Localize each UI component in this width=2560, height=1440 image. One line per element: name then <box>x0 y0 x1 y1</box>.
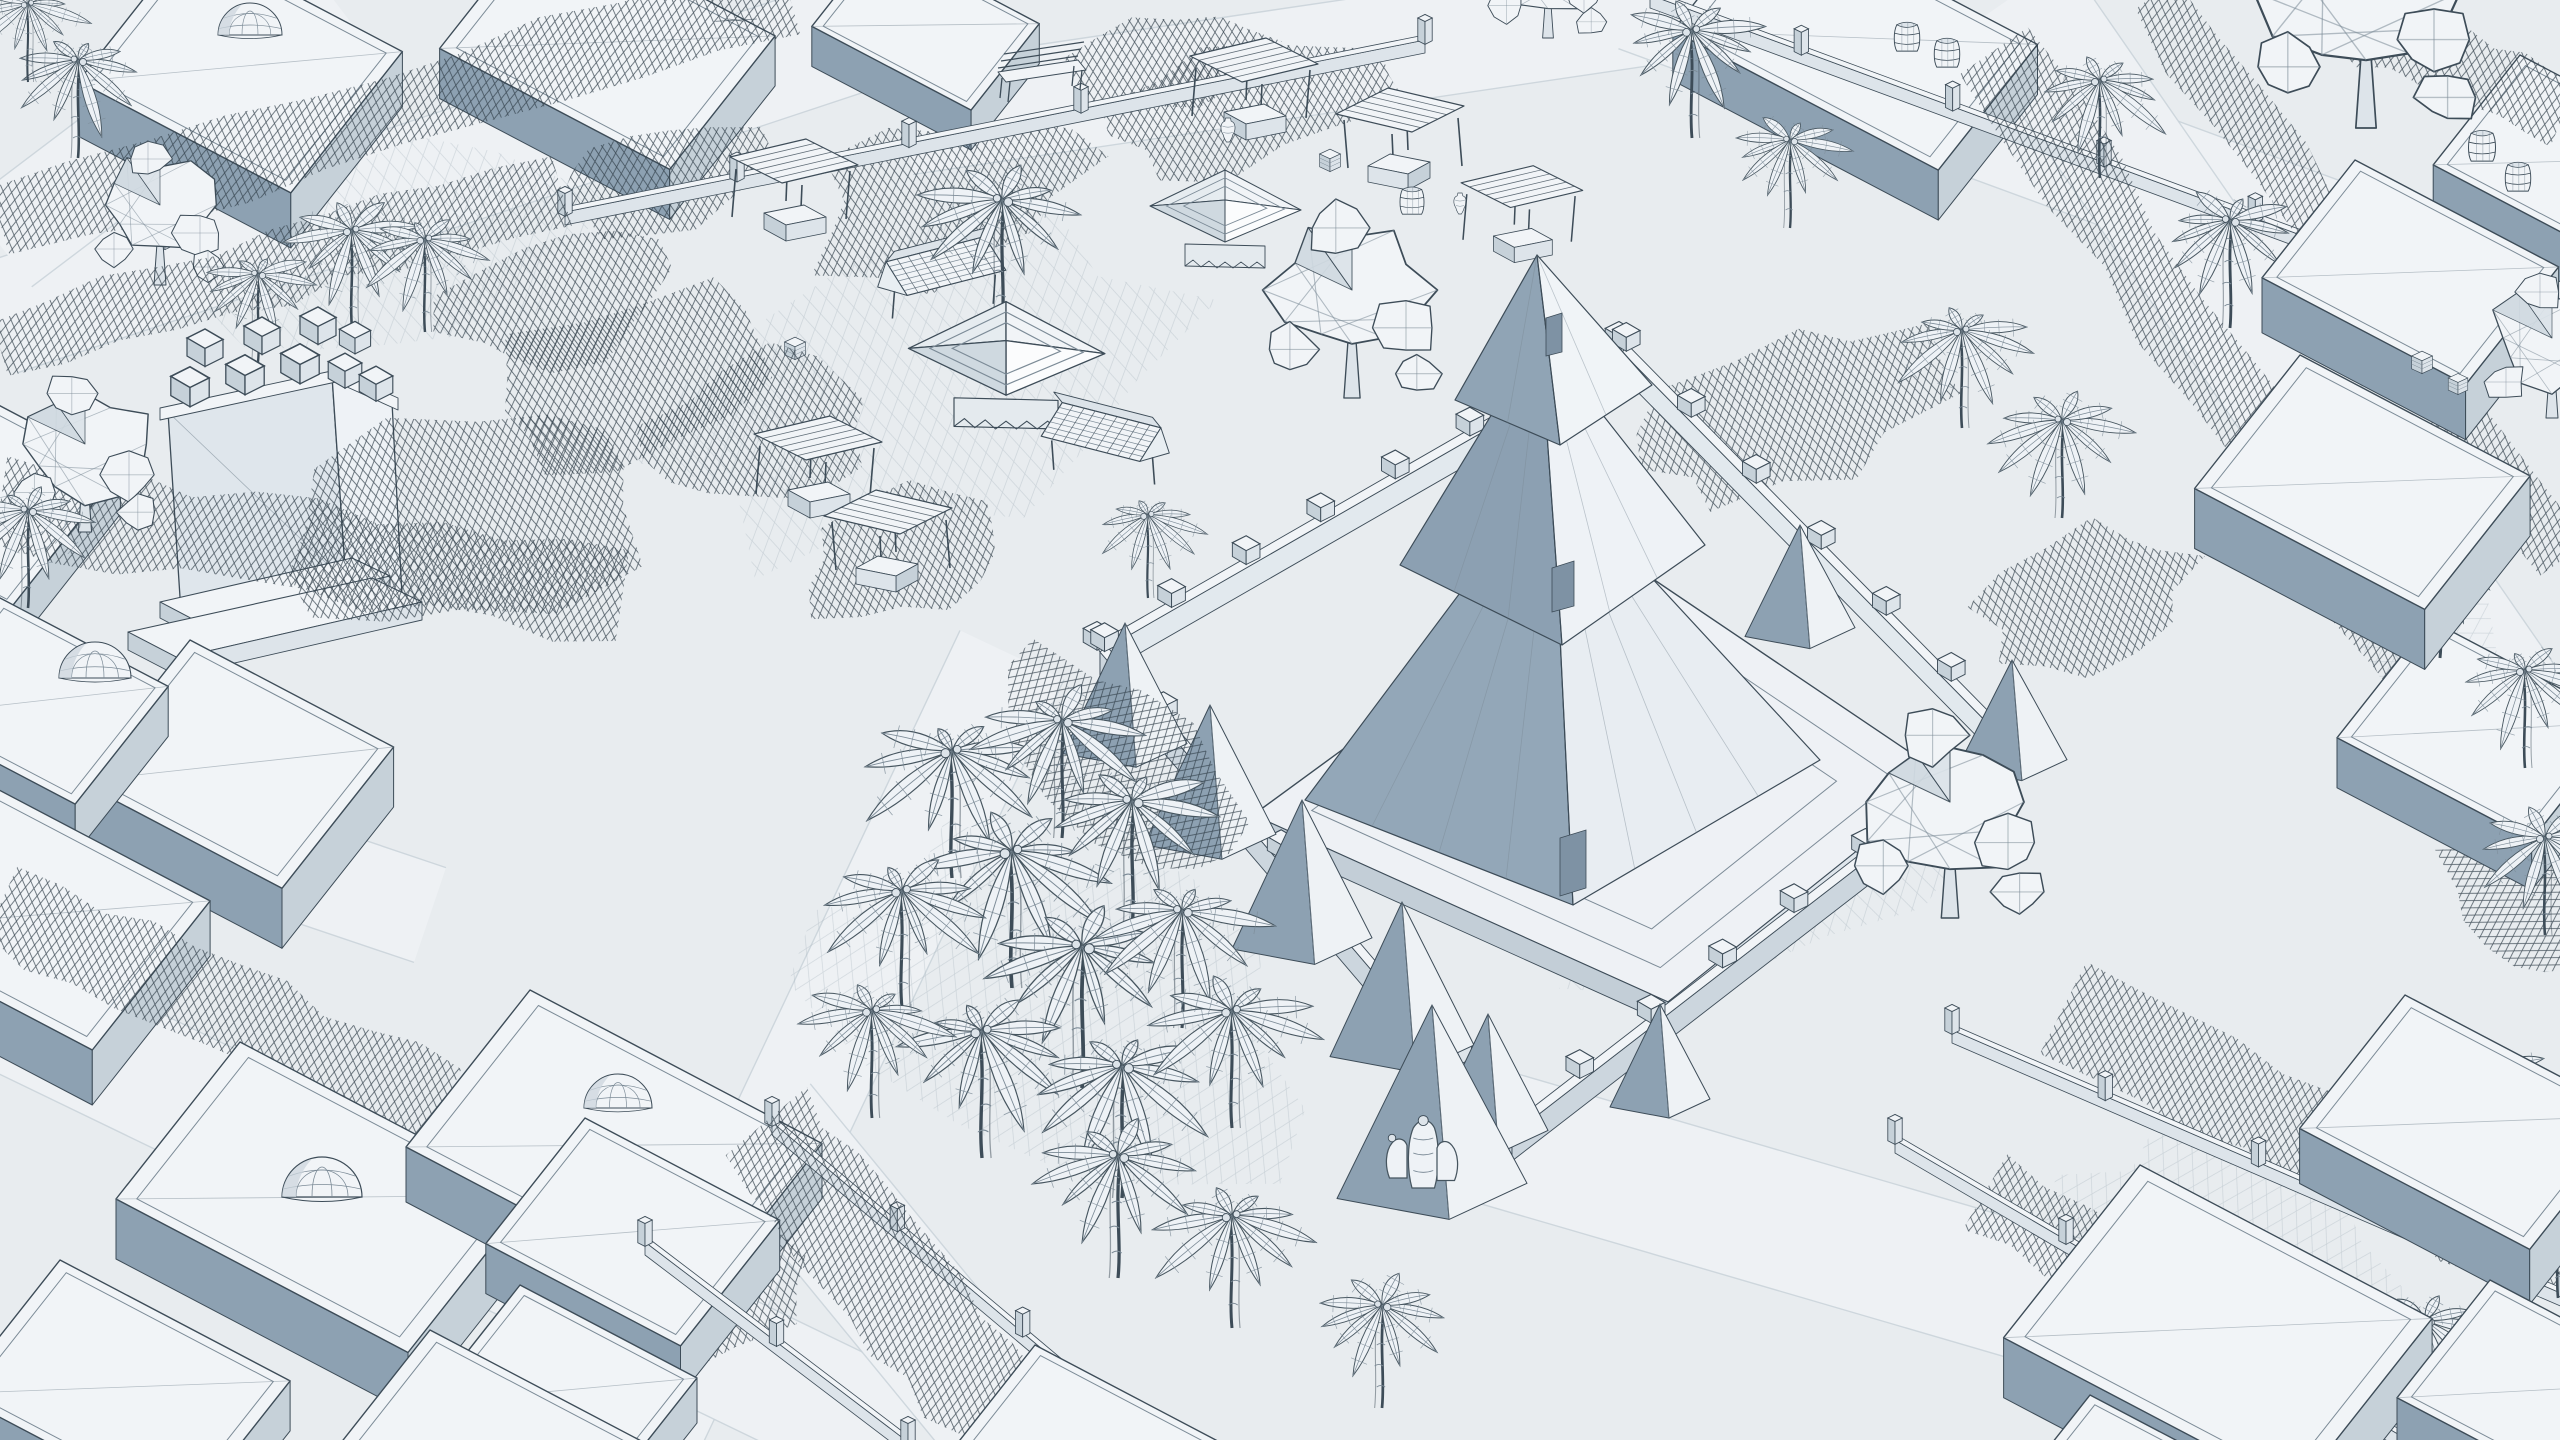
palm-tree <box>970 685 1146 838</box>
palm-tree <box>367 218 490 332</box>
street <box>0 0 953 373</box>
street <box>1964 0 2560 826</box>
hedge-patch <box>252 353 660 689</box>
flat-roof-building <box>812 0 1040 150</box>
flat-roof-building <box>2004 1165 2433 1440</box>
lowpoly-tree <box>2484 273 2560 418</box>
flat-roof-building <box>0 780 210 1105</box>
lowpoly-tree <box>14 376 154 532</box>
market-stall-canopy <box>1336 88 1464 190</box>
street-fence <box>558 14 1432 225</box>
hedge-row <box>0 456 629 641</box>
hedge-row <box>726 1087 1065 1440</box>
hedge-patch <box>2417 793 2560 1003</box>
flat-roof-building <box>440 0 775 219</box>
palm-tree <box>2351 1296 2502 1428</box>
market-stall-canopy <box>824 490 952 592</box>
palm-tree <box>1736 116 1853 228</box>
hedge-patch <box>1094 8 1415 205</box>
flat-roof-building <box>0 1260 290 1440</box>
compound-wall <box>1083 321 1633 676</box>
flat-roof-building <box>2262 160 2559 440</box>
compound-wall <box>1495 718 2023 1161</box>
ground-mesh-patch <box>2217 388 2530 737</box>
palm-tree <box>1103 501 1208 598</box>
ground-mesh-patch <box>179 88 652 397</box>
wall-pyramid <box>1957 660 2067 781</box>
flat-roof-building <box>0 598 168 854</box>
street-fence <box>765 1096 1155 1440</box>
market-stall-canopy <box>754 416 882 518</box>
palm-tree <box>984 906 1154 1088</box>
hedge-patch <box>780 459 1015 651</box>
palm-tree <box>2129 1277 2283 1428</box>
lowpoly-tree <box>1488 0 1607 38</box>
street <box>1443 1063 2560 1440</box>
palm-tree <box>2501 1173 2560 1298</box>
palm-tree <box>1631 1 1765 138</box>
street <box>897 0 1658 174</box>
flat-roof-building <box>78 0 402 248</box>
ground-mesh-patch <box>2012 1069 2468 1440</box>
flat-roof-building <box>116 1042 532 1413</box>
market-stall-thatched <box>1041 392 1169 484</box>
hedge-patch <box>418 210 691 402</box>
flat-roof-building <box>486 1118 780 1396</box>
hedge-patch <box>780 75 1132 324</box>
street <box>0 949 932 1440</box>
flat-roof-building <box>2337 620 2560 890</box>
compound-wall <box>1612 322 2030 772</box>
wall-pyramid <box>1337 1005 1527 1219</box>
flat-roof-building <box>331 1330 660 1440</box>
barrel-prop <box>2505 162 2531 192</box>
palm-tree <box>2483 807 2560 935</box>
hedge-patch <box>622 323 885 539</box>
palm-tree <box>2173 190 2288 328</box>
hedge-patch <box>1614 284 1976 547</box>
street <box>710 1084 1071 1440</box>
crate-prop <box>181 205 204 230</box>
ground-plane <box>0 0 2560 1440</box>
crate-prop <box>155 227 176 249</box>
hedge-row <box>0 867 461 1143</box>
palm-tree <box>1095 887 1275 1028</box>
flat-roof-building <box>1673 0 2038 220</box>
wall-pyramid <box>1330 902 1474 1072</box>
street <box>0 723 446 963</box>
hedge-patch <box>956 608 1279 915</box>
street-fence <box>1945 1004 2560 1308</box>
flat-roof-building <box>2195 355 2531 669</box>
wall-pyramid <box>1063 623 1187 767</box>
palm-tree <box>2418 1038 2559 1178</box>
crate-prop <box>2412 351 2433 373</box>
market-stall-thatched <box>878 226 1006 318</box>
barrel-prop <box>1400 187 1424 215</box>
palm-tree <box>1988 391 2136 518</box>
palm-tree <box>897 998 1060 1158</box>
hedge-row <box>1963 1154 2421 1440</box>
palm-tree <box>825 858 986 1008</box>
street <box>1618 0 2560 389</box>
palm-tree <box>917 165 1081 322</box>
palm-tree <box>2045 57 2166 178</box>
barrel-prop <box>1934 38 1960 68</box>
wall-pyramid <box>1232 800 1372 964</box>
market-stall-canopy <box>730 139 858 241</box>
palm-tree <box>865 724 1031 878</box>
ground-mesh-patch <box>758 748 1375 1248</box>
hedge-row <box>2136 0 2560 576</box>
palm-tree <box>1898 308 2033 428</box>
lowpoly-tree <box>2254 0 2476 128</box>
crate-prop <box>785 337 806 359</box>
palm-tree <box>2368 515 2501 658</box>
hedge-patch <box>553 108 785 255</box>
lowpoly-tree <box>1855 709 2044 918</box>
wall-pyramid <box>1144 705 1276 859</box>
palm-tree <box>20 40 136 158</box>
amphora-prop <box>1221 118 1235 142</box>
palm-tree <box>798 985 956 1118</box>
palm-tree <box>1148 976 1323 1128</box>
street <box>588 630 1064 1440</box>
hedge-row <box>1960 27 2473 731</box>
flat-roof-building <box>406 990 822 1356</box>
pyramid-roof-shrine <box>909 302 1105 429</box>
palm-tree <box>0 487 95 608</box>
hedge-row <box>2280 0 2560 147</box>
hedge-patch <box>524 1177 829 1413</box>
barrel-prop <box>1894 22 1920 52</box>
market-bench <box>998 42 1086 102</box>
hedge-row <box>2040 962 2560 1295</box>
flat-roof-building <box>2009 1395 2267 1440</box>
flat-roof-building <box>78 640 393 948</box>
barrel-prop <box>2469 131 2496 163</box>
palm-tree <box>282 201 418 328</box>
palm-tree <box>1152 1188 1316 1328</box>
compound-wall <box>1091 623 1531 1161</box>
cactus <box>1386 1116 1457 1189</box>
crate-prop <box>1320 149 1341 171</box>
hedge-patch <box>1060 0 1291 129</box>
palm-tree <box>2466 647 2560 768</box>
wall-pyramid <box>1428 1014 1548 1153</box>
hedge-row <box>0 157 572 376</box>
flat-roof-building <box>2300 995 2560 1304</box>
street-fence <box>1643 0 2560 343</box>
palm-tree <box>1055 773 1219 928</box>
amphora-prop <box>1454 193 1466 214</box>
palm-tree <box>1038 1039 1207 1198</box>
palm-tree <box>1320 1273 1443 1408</box>
hedge-row <box>0 0 800 254</box>
market-stall-canopy <box>1461 166 1583 263</box>
palm-tree <box>207 257 317 362</box>
ground-mesh-patch <box>585 154 1259 614</box>
market-stall-canopy <box>1190 38 1318 140</box>
flat-roof-building <box>948 1345 1229 1440</box>
wall-pyramid <box>1745 525 1855 649</box>
wall-pyramid <box>1610 1004 1710 1118</box>
hedge-patch <box>486 269 786 495</box>
scene-canvas <box>0 0 2560 1440</box>
flat-roof-building <box>427 1285 697 1440</box>
crenellated-tower <box>128 307 422 676</box>
palm-tree <box>916 812 1111 988</box>
hedge-patch <box>1953 485 2231 708</box>
ground-mesh-patch <box>1500 674 1980 1028</box>
city-scene <box>0 0 2560 1440</box>
pyramid-roof-shrine <box>1150 170 1301 268</box>
lowpoly-tree <box>1263 199 1443 398</box>
flat-roof-building <box>0 390 120 655</box>
stepped-ziggurat <box>1253 255 1948 1024</box>
street-fence <box>1888 1114 2415 1440</box>
screenshot-root: { "scene": { "type": "3d-lowpoly-wirefra… <box>0 0 2560 1440</box>
street <box>0 0 362 287</box>
crate-prop <box>2448 374 2468 395</box>
palm-tree <box>1032 1119 1195 1278</box>
lowpoly-tree <box>95 141 224 285</box>
street-fence <box>638 1216 915 1440</box>
flat-roof-building <box>2433 55 2560 317</box>
flat-roof-building <box>2397 1280 2560 1440</box>
palm-tree <box>0 0 91 82</box>
